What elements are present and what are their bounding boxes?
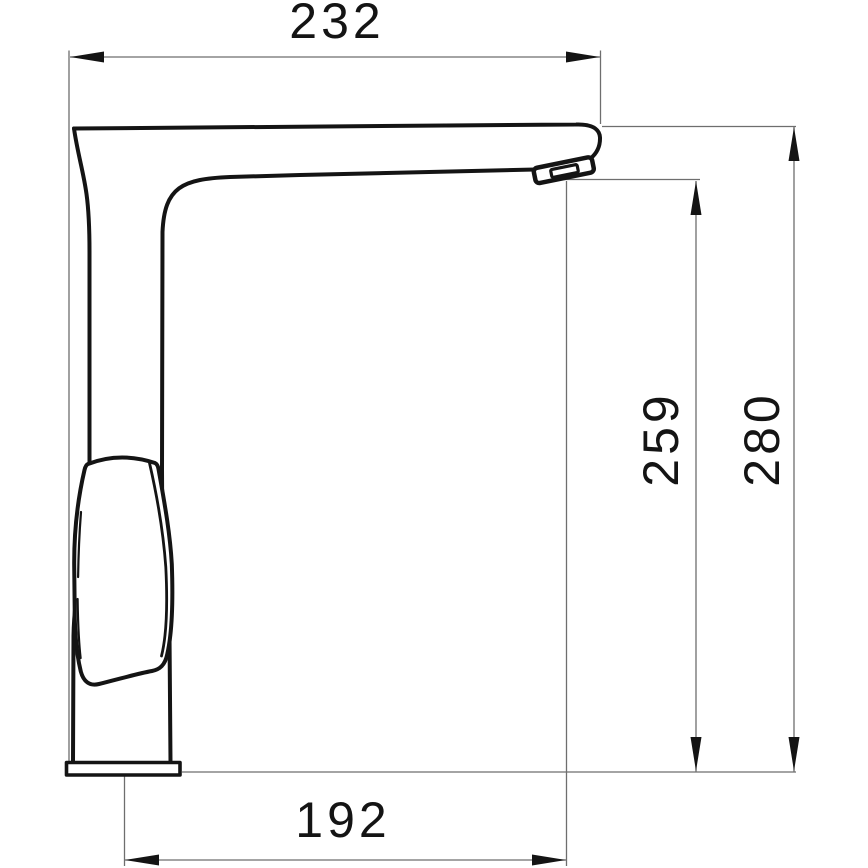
arrow-232-right-icon (566, 52, 600, 63)
arrow-232-left-icon (70, 52, 104, 63)
spout-underside-and-right-contour (162, 170, 535, 763)
base-plate (67, 763, 181, 776)
spout-top-edge (74, 124, 600, 158)
handle-lever (74, 457, 172, 684)
dim-label-spout-height: 259 (633, 391, 689, 486)
arrow-259-down-icon (691, 737, 702, 771)
technical-drawing-canvas: 232 259 280 192 (0, 0, 868, 868)
arrow-192-left-icon (125, 855, 159, 866)
arrow-259-up-icon (691, 181, 702, 215)
arrow-192-right-icon (532, 855, 566, 866)
dim-label-spout-reach: 192 (295, 792, 390, 848)
dim-label-top-width: 232 (289, 0, 384, 49)
faucet-dimension-drawing: 232 259 280 192 (0, 0, 868, 868)
faucet-outline-group (67, 124, 601, 775)
arrow-280-up-icon (789, 127, 800, 161)
dim-label-total-height: 280 (734, 391, 790, 486)
arrow-280-down-icon (789, 737, 800, 771)
